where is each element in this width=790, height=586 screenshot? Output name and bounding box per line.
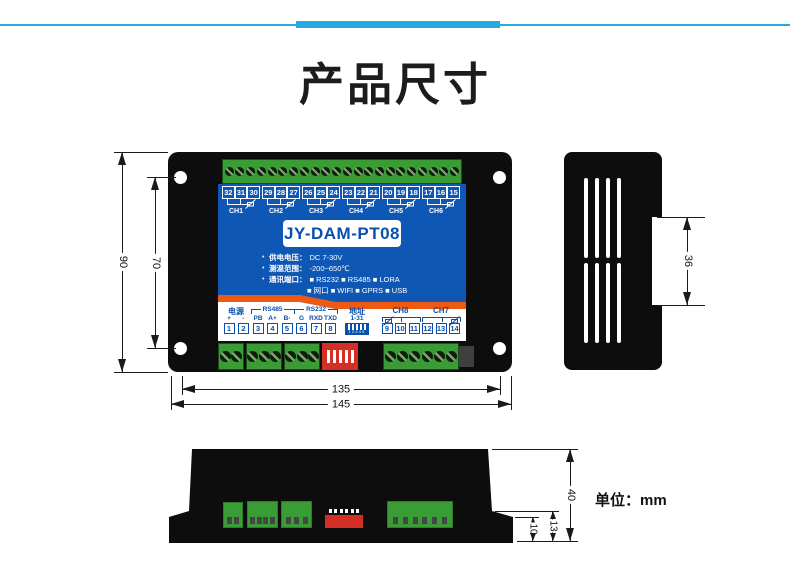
- terminal-number: 8: [325, 323, 336, 334]
- screw-icon: [396, 167, 405, 176]
- product-dimensions-page: 产品尺寸 JY-DAM-PT08 323130CH1292827CH226252…: [0, 0, 790, 586]
- vent-slot: [617, 263, 621, 343]
- terminal-label-panel: 12345678+-PBA+B-GRXDTXD电源RS485RS232地址1-3…: [218, 184, 466, 341]
- terminal-number: 10: [395, 323, 406, 334]
- screw-icon: [220, 351, 231, 362]
- screw-icon: [429, 167, 438, 176]
- terminal-pins: [224, 517, 242, 524]
- dip-numbers: 12345: [348, 330, 365, 334]
- device-faceplate: JY-DAM-PT08 323130CH1292827CH2262524CH32…: [218, 184, 466, 341]
- bracket-cap: [294, 309, 304, 314]
- din-rail-notch: [652, 217, 662, 305]
- device-bottom-silhouette: [160, 440, 530, 550]
- vent-slot: [617, 178, 621, 258]
- bracket-cap: [284, 309, 294, 314]
- dip-dots: [326, 509, 362, 514]
- screw-icon: [409, 351, 420, 362]
- mounting-hole: [493, 171, 506, 184]
- screw-icon: [450, 167, 459, 176]
- dimension-depth-40: 40: [570, 449, 571, 541]
- dimension-depth-13: 13: [552, 511, 553, 541]
- screw-icon: [343, 167, 352, 176]
- dip-switch-icon: 12345: [345, 323, 369, 335]
- top-terminal-strip: [222, 159, 462, 184]
- channel-bracket: [422, 317, 461, 322]
- terminal-block-side: [387, 501, 453, 528]
- dimension-width-145: 145: [171, 404, 511, 405]
- bracket-cap: [328, 309, 338, 314]
- screw-icon: [285, 351, 296, 362]
- group-label-rs232: RS232: [294, 306, 338, 314]
- terminal-number: 6: [296, 323, 307, 334]
- extension-line: [517, 541, 578, 542]
- screw-icon: [375, 167, 384, 176]
- dimension-width-135: 135: [182, 389, 500, 390]
- group-label-rs485: RS485: [251, 306, 295, 314]
- screw-icon: [278, 167, 287, 176]
- screw-icon: [439, 167, 448, 176]
- terminal-pins: [282, 517, 311, 524]
- terminal-number: 11: [409, 323, 420, 334]
- extension-line: [511, 376, 512, 410]
- dimension-hole-spacing-70: 70: [155, 177, 156, 348]
- screw-icon: [321, 167, 330, 176]
- dimension-height-90: 90: [122, 152, 123, 372]
- device-side-view: [564, 152, 662, 370]
- screw-icon: [308, 351, 319, 362]
- vent-slot: [584, 263, 588, 343]
- dip-switch-front: [322, 343, 358, 370]
- screw-icon: [247, 351, 258, 362]
- group-label-power: 电源: [222, 306, 250, 317]
- screw-icon: [257, 167, 266, 176]
- terminal-block: [246, 343, 282, 370]
- extension-line: [147, 348, 176, 349]
- screw-icon: [311, 167, 320, 176]
- terminal-pins: [388, 517, 452, 524]
- screw-icon: [268, 167, 277, 176]
- extension-line: [657, 305, 705, 306]
- terminal-block-side: [223, 502, 243, 528]
- screw-icon: [259, 351, 270, 362]
- vent-slot: [595, 263, 599, 343]
- terminal-number: 2: [238, 323, 249, 334]
- screw-icon: [235, 167, 244, 176]
- terminal-number: 4: [267, 323, 278, 334]
- screw-icon: [297, 351, 308, 362]
- terminal-number: 7: [311, 323, 322, 334]
- screw-icon: [225, 167, 234, 176]
- screw-icon: [386, 167, 395, 176]
- screw-icon: [246, 167, 255, 176]
- divider-accent: [296, 21, 500, 28]
- extension-line: [657, 217, 705, 218]
- terminal-number: 12: [422, 323, 433, 334]
- terminal-block: [218, 343, 244, 370]
- screw-icon: [418, 167, 427, 176]
- dimension-clip-36: 36: [687, 217, 688, 305]
- pin-label: TXD: [323, 315, 339, 322]
- screw-icon: [300, 167, 309, 176]
- terminal-number: 1: [224, 323, 235, 334]
- mounting-hole: [493, 342, 506, 355]
- dimension-depth-10: 10: [532, 517, 533, 541]
- vent-slot: [606, 178, 610, 258]
- screw-icon: [364, 167, 373, 176]
- dip-switch-side: [325, 515, 363, 528]
- terminal-number: 3: [253, 323, 264, 334]
- group-label: RS232: [304, 306, 328, 314]
- screw-icon: [407, 167, 416, 176]
- screw-icon: [397, 351, 408, 362]
- extension-line: [500, 376, 501, 395]
- screw-icon: [434, 351, 445, 362]
- terminal-pins: [248, 517, 277, 524]
- screw-icon: [270, 351, 281, 362]
- page-title: 产品尺寸: [0, 48, 790, 113]
- terminal-block-side: [247, 501, 278, 528]
- terminal-number: 13: [436, 323, 447, 334]
- terminal-number: 5: [282, 323, 293, 334]
- screw-icon: [231, 351, 242, 362]
- screw-icon: [446, 351, 457, 362]
- bracket-tick: [442, 318, 443, 322]
- unit-label: 单位：mm: [595, 489, 667, 510]
- bracket-cap: [251, 309, 261, 314]
- channel-bracket: [382, 317, 421, 322]
- screw-icon: [385, 351, 396, 362]
- screw-icon: [354, 167, 363, 176]
- vent-slot: [606, 263, 610, 343]
- screw-icon: [289, 167, 298, 176]
- terminal-block: [284, 343, 320, 370]
- group-label: RS485: [261, 306, 285, 314]
- vent-slot: [584, 178, 588, 258]
- extension-line: [114, 372, 168, 373]
- vent-slot: [595, 178, 599, 258]
- bracket-tick: [401, 318, 402, 322]
- address-range: 1-31: [345, 315, 369, 322]
- screw-icon: [332, 167, 341, 176]
- terminal-block-side: [281, 501, 312, 528]
- connector-stub: [459, 346, 474, 367]
- screw-icon: [422, 351, 433, 362]
- device-bottom-view: [160, 440, 530, 550]
- terminal-block: [383, 343, 459, 370]
